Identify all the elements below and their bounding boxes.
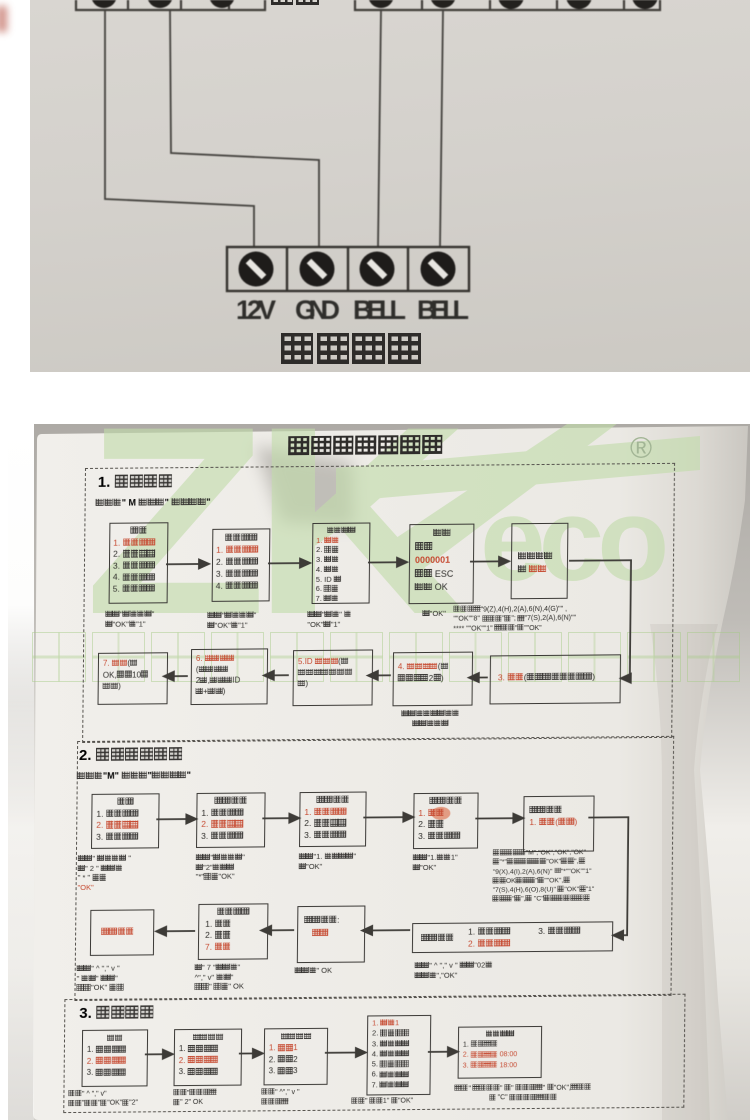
- svg-text:12V: 12V: [236, 295, 276, 325]
- svg-text:BELL: BELL: [353, 295, 406, 325]
- svg-text:BELL: BELL: [417, 295, 469, 325]
- svg-text:GND: GND: [295, 295, 340, 325]
